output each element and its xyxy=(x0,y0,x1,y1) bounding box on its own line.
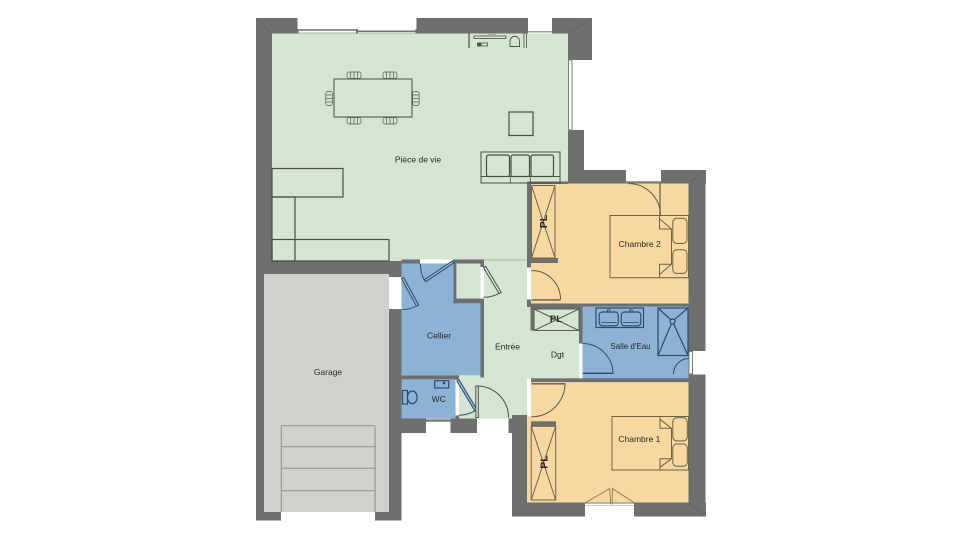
svg-text:Cellier: Cellier xyxy=(427,331,451,341)
svg-text:Salle d'Eau: Salle d'Eau xyxy=(610,342,650,351)
svg-text:PL: PL xyxy=(538,214,550,228)
svg-text:Garage: Garage xyxy=(314,367,343,377)
svg-text:Chambre 2: Chambre 2 xyxy=(619,239,661,249)
svg-text:PL: PL xyxy=(539,455,551,469)
svg-text:Pièce de vie: Pièce de vie xyxy=(395,155,442,165)
svg-text:PL: PL xyxy=(550,314,562,325)
svg-text:WC: WC xyxy=(432,394,446,404)
svg-text:Chambre 1: Chambre 1 xyxy=(618,434,660,444)
svg-text:Dgt: Dgt xyxy=(551,350,565,360)
svg-text:Entrée: Entrée xyxy=(495,342,520,352)
